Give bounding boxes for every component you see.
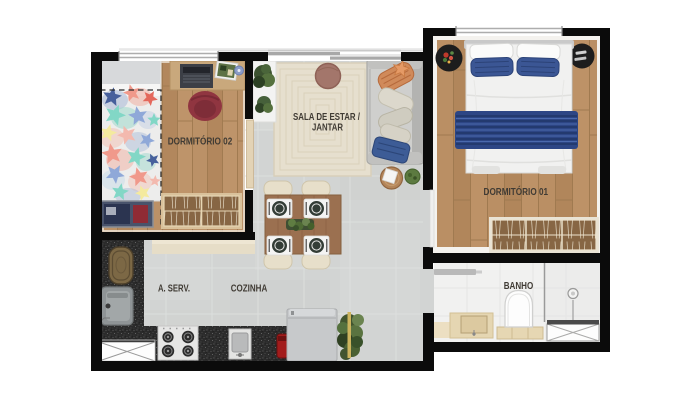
svg-text:DORMITÓRIO 01: DORMITÓRIO 01 [484,186,549,198]
svg-text:JANTAR: JANTAR [312,123,343,134]
svg-text:DORMITÓRIO 02: DORMITÓRIO 02 [168,136,233,148]
svg-text:A. SERV.: A. SERV. [158,284,190,295]
svg-text:SALA DE ESTAR /: SALA DE ESTAR / [293,112,360,123]
svg-text:BANHO: BANHO [504,281,534,292]
svg-text:COZINHA: COZINHA [231,284,268,295]
